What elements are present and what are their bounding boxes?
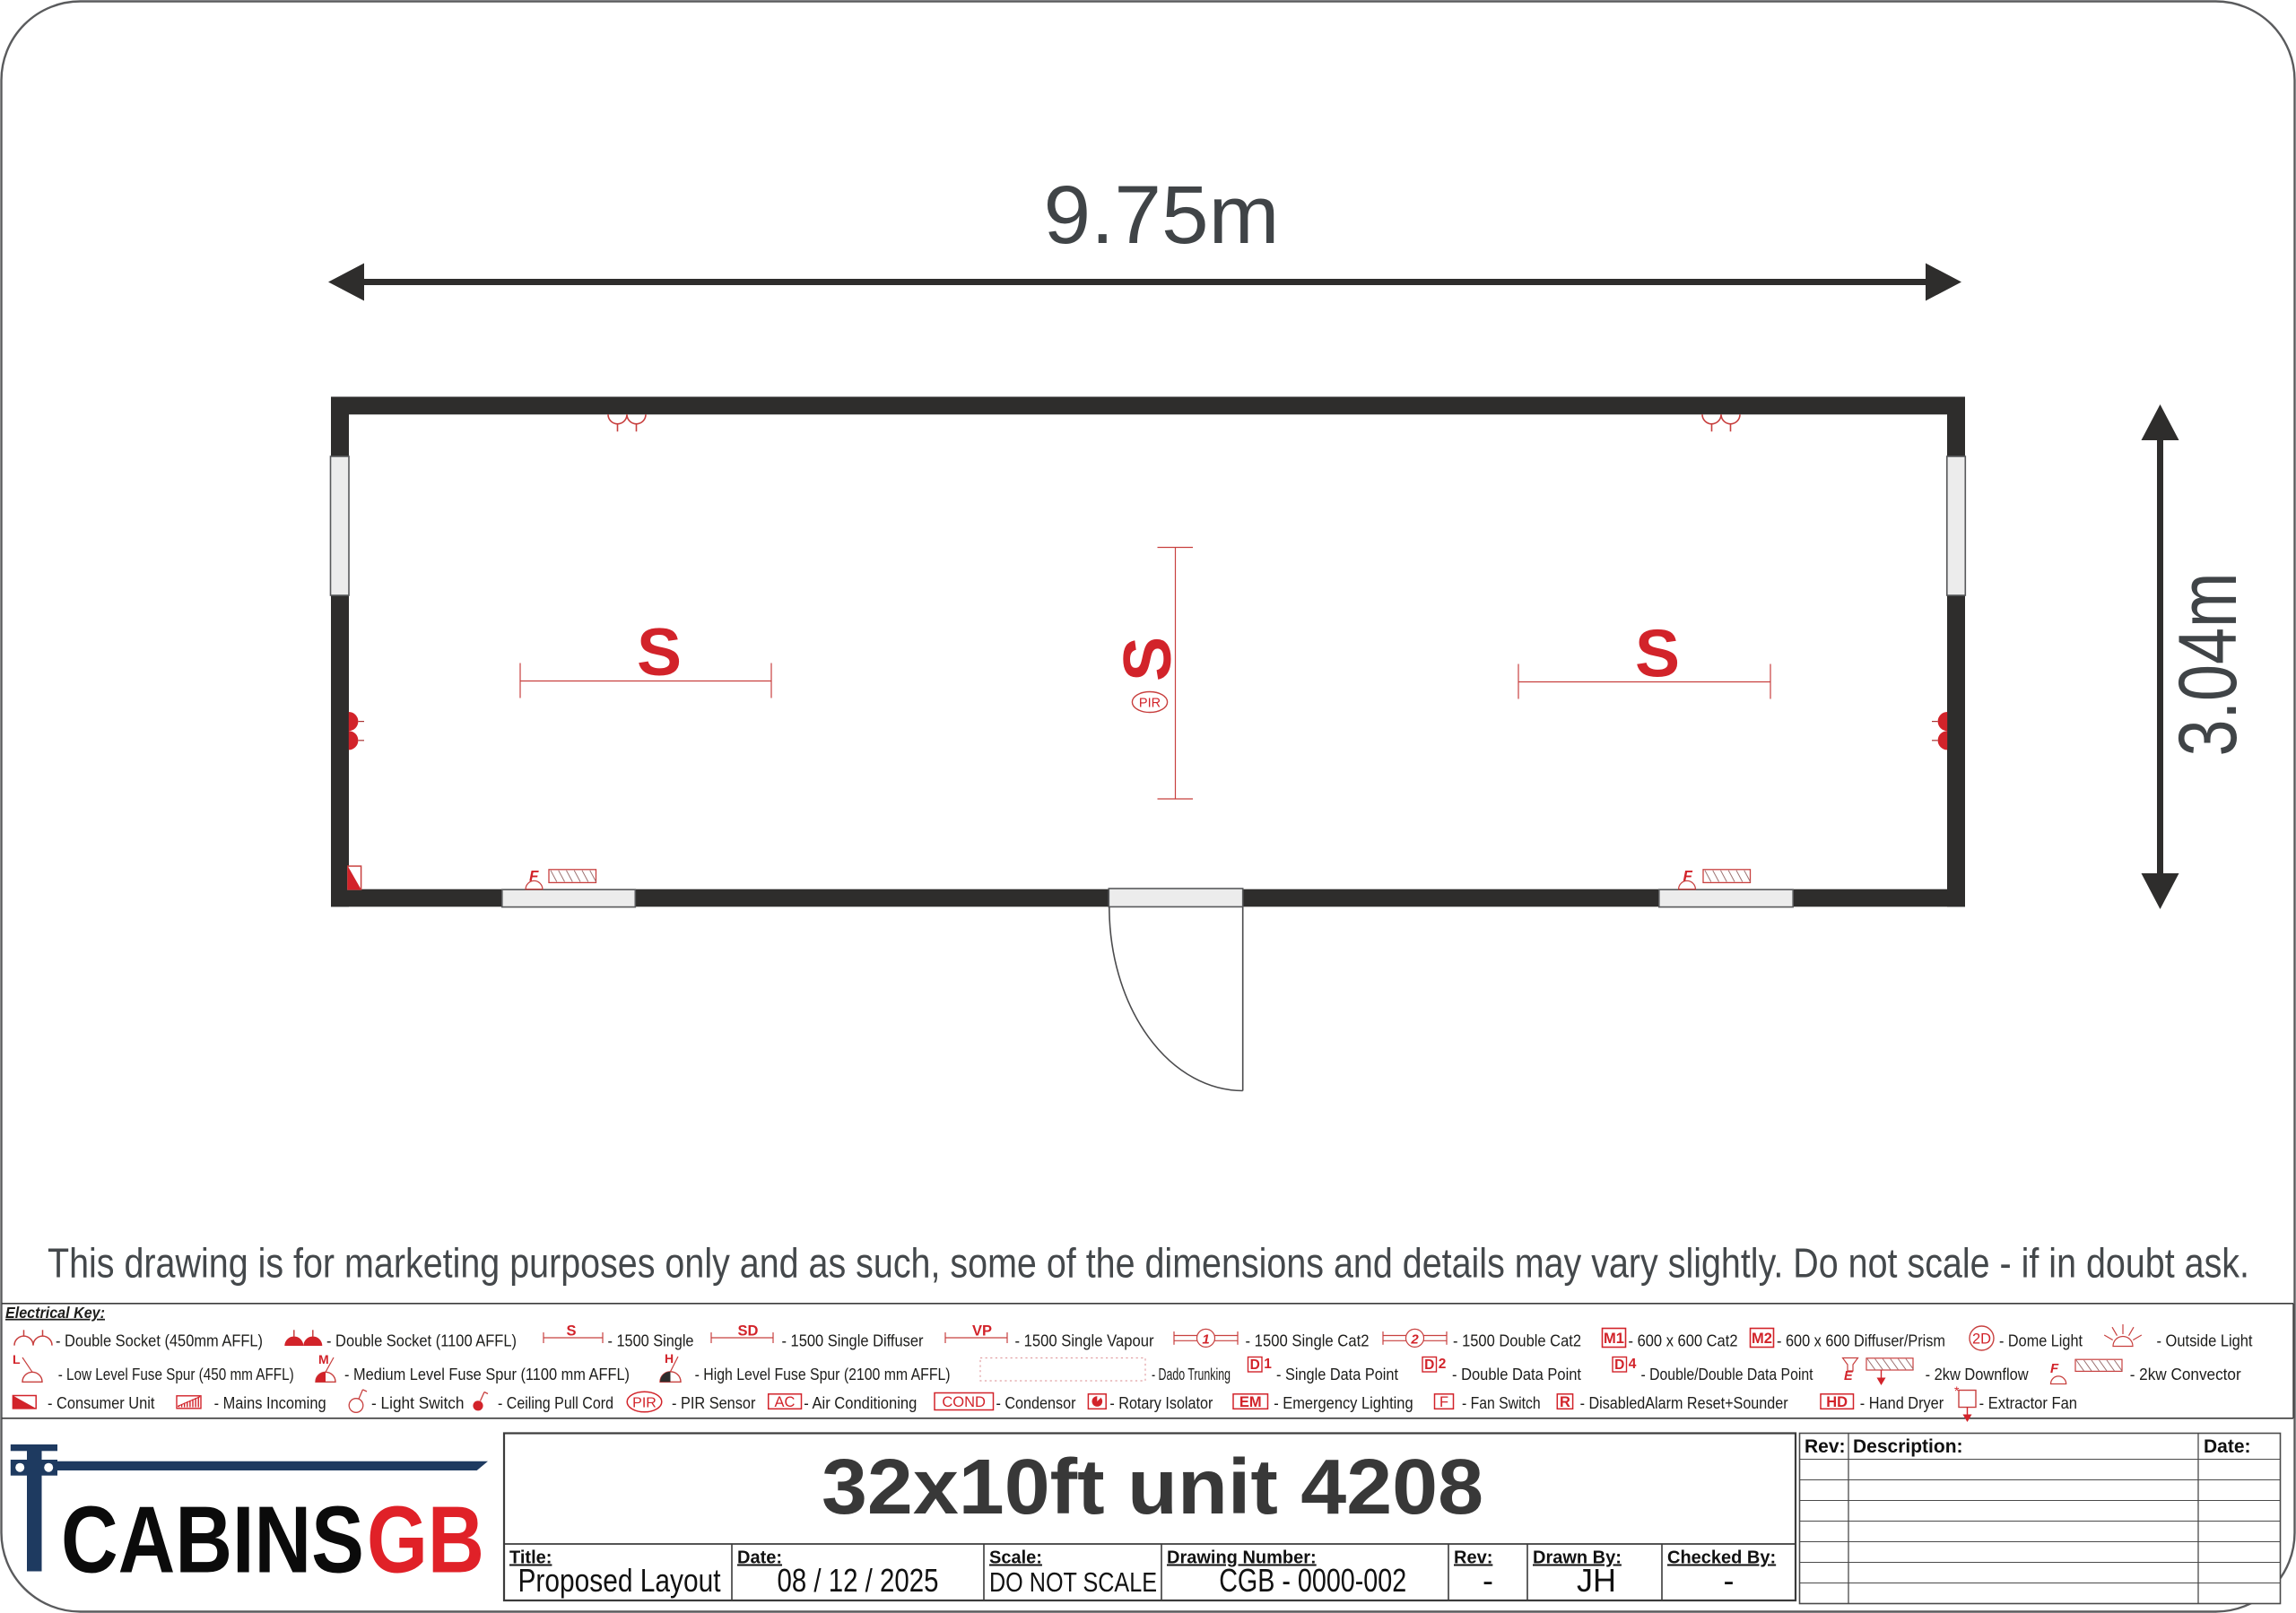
svg-text:SD: SD bbox=[738, 1323, 759, 1340]
svg-text:EM: EM bbox=[1239, 1394, 1262, 1410]
svg-text:E: E bbox=[1844, 1369, 1854, 1383]
svg-text:- Consumer Unit: - Consumer Unit bbox=[48, 1393, 155, 1412]
svg-text:S: S bbox=[637, 614, 682, 689]
svg-text:*: * bbox=[1954, 1383, 1960, 1398]
svg-text:CGB - 0000-002: CGB - 0000-002 bbox=[1219, 1562, 1406, 1599]
svg-text:S: S bbox=[566, 1323, 576, 1340]
svg-text:-: - bbox=[1483, 1562, 1493, 1599]
svg-text:F: F bbox=[1439, 1394, 1448, 1410]
svg-text:- Medium Level Fuse Spur (1100: - Medium Level Fuse Spur (1100 mm AFFL) bbox=[344, 1365, 630, 1383]
svg-text:Description:: Description: bbox=[1853, 1436, 1963, 1457]
svg-text:DO NOT SCALE: DO NOT SCALE bbox=[989, 1566, 1157, 1598]
svg-text:- Hand Dryer: - Hand Dryer bbox=[1860, 1393, 1944, 1412]
svg-text:CABINS: CABINS bbox=[61, 1487, 364, 1593]
svg-text:Date:: Date: bbox=[737, 1548, 782, 1568]
svg-text:2: 2 bbox=[1439, 1357, 1447, 1372]
svg-text:1: 1 bbox=[1264, 1357, 1272, 1372]
svg-text:COND: COND bbox=[942, 1394, 986, 1410]
svg-text:Electrical Key:: Electrical Key: bbox=[5, 1304, 105, 1322]
svg-text:- Fan Switch: - Fan Switch bbox=[1462, 1393, 1541, 1412]
svg-text:D: D bbox=[1424, 1357, 1434, 1373]
svg-text:- Double Socket (1100 AFFL): - Double Socket (1100 AFFL) bbox=[326, 1331, 517, 1350]
svg-text:PIR: PIR bbox=[632, 1395, 657, 1410]
svg-text:Checked By:: Checked By: bbox=[1667, 1548, 1776, 1568]
svg-text:- High Level Fuse Spur (2100 m: - High Level Fuse Spur (2100 mm AFFL) bbox=[695, 1365, 951, 1383]
svg-text:- Dado Trunking: - Dado Trunking bbox=[1152, 1365, 1231, 1383]
svg-text:M: M bbox=[318, 1352, 329, 1366]
svg-text:- Condensor: - Condensor bbox=[996, 1393, 1076, 1412]
svg-text:- 1500 Double Cat2: - 1500 Double Cat2 bbox=[1453, 1331, 1581, 1350]
svg-text:M1: M1 bbox=[1604, 1331, 1624, 1347]
svg-text:- 1500 Single Diffuser: - 1500 Single Diffuser bbox=[782, 1331, 924, 1350]
svg-text:R: R bbox=[1560, 1394, 1570, 1410]
svg-text:Date:: Date: bbox=[2204, 1436, 2251, 1457]
svg-text:Scale:: Scale: bbox=[989, 1548, 1042, 1568]
svg-text:- 2kw Convector: - 2kw Convector bbox=[2130, 1365, 2241, 1383]
svg-text:Rev:: Rev: bbox=[1805, 1436, 1846, 1457]
svg-text:2: 2 bbox=[1410, 1331, 1419, 1347]
svg-text:-: - bbox=[1724, 1562, 1735, 1599]
svg-text:08 / 12 / 2025: 08 / 12 / 2025 bbox=[778, 1562, 939, 1599]
svg-text:M2: M2 bbox=[1752, 1331, 1772, 1347]
svg-text:- 600 x 600 Cat2: - 600 x 600 Cat2 bbox=[1629, 1331, 1738, 1350]
svg-text:- Double Socket (450mm AFFL): - Double Socket (450mm AFFL) bbox=[56, 1331, 263, 1350]
svg-text:- Emergency Lighting: - Emergency Lighting bbox=[1274, 1393, 1413, 1412]
svg-text:- Rotary Isolator: - Rotary Isolator bbox=[1109, 1393, 1213, 1412]
svg-text:32x10ft unit 4208: 32x10ft unit 4208 bbox=[822, 1444, 1483, 1531]
svg-text:H: H bbox=[665, 1351, 674, 1366]
svg-text:1: 1 bbox=[1202, 1331, 1209, 1347]
svg-text:- Ceiling Pull Cord: - Ceiling Pull Cord bbox=[498, 1393, 613, 1412]
svg-text:AC: AC bbox=[775, 1394, 796, 1410]
svg-text:PIR: PIR bbox=[1139, 697, 1161, 711]
svg-text:- Dome Light: - Dome Light bbox=[1999, 1331, 2083, 1350]
svg-text:D: D bbox=[1614, 1357, 1624, 1373]
svg-text:JH: JH bbox=[1577, 1562, 1616, 1599]
svg-text:- PIR Sensor: - PIR Sensor bbox=[672, 1393, 755, 1412]
svg-text:- 1500 Single Vapour: - 1500 Single Vapour bbox=[1015, 1331, 1154, 1350]
svg-text:- Air Conditioning: - Air Conditioning bbox=[804, 1393, 917, 1412]
svg-text:GB: GB bbox=[367, 1487, 484, 1593]
svg-text:VP: VP bbox=[972, 1323, 992, 1340]
svg-text:- Double Data Point: - Double Data Point bbox=[1452, 1365, 1581, 1383]
svg-text:Proposed Layout: Proposed Layout bbox=[518, 1562, 721, 1599]
svg-text:- Light Switch: - Light Switch bbox=[371, 1393, 465, 1412]
svg-text:2D: 2D bbox=[1972, 1331, 1991, 1348]
svg-text:L: L bbox=[13, 1352, 21, 1366]
svg-text:- Double/Double Data Point: - Double/Double Data Point bbox=[1641, 1365, 1813, 1383]
svg-text:- Extractor Fan: - Extractor Fan bbox=[1979, 1393, 2077, 1412]
svg-text:This drawing is for marketing: This drawing is for marketing purposes o… bbox=[48, 1240, 2249, 1287]
svg-text:HD: HD bbox=[1826, 1394, 1848, 1410]
svg-text:4: 4 bbox=[1629, 1357, 1637, 1372]
svg-text:3.04m: 3.04m bbox=[2162, 573, 2254, 757]
svg-text:S: S bbox=[1635, 616, 1680, 691]
svg-text:- Mains Incoming: - Mains Incoming bbox=[214, 1393, 326, 1412]
svg-text:- Low Level Fuse Spur (450 mm: - Low Level Fuse Spur (450 mm AFFL) bbox=[58, 1365, 294, 1383]
svg-text:S: S bbox=[1109, 637, 1185, 681]
svg-text:- 1500 Single: - 1500 Single bbox=[608, 1331, 694, 1350]
svg-text:- Single Data Point: - Single Data Point bbox=[1276, 1365, 1398, 1383]
svg-text:9.75m: 9.75m bbox=[1044, 169, 1280, 261]
svg-text:- Outside Light: - Outside Light bbox=[2157, 1331, 2253, 1350]
svg-text:F: F bbox=[2050, 1361, 2059, 1376]
svg-text:D: D bbox=[1250, 1357, 1260, 1373]
svg-text:- DisabledAlarm Reset+Sounder: - DisabledAlarm Reset+Sounder bbox=[1580, 1393, 1788, 1412]
svg-text:- 1500 Single Cat2: - 1500 Single Cat2 bbox=[1246, 1331, 1370, 1350]
svg-text:- 600 x 600 Diffuser/Prism: - 600 x 600 Diffuser/Prism bbox=[1777, 1331, 1945, 1350]
svg-text:- 2kw Downflow: - 2kw Downflow bbox=[1926, 1365, 2030, 1383]
